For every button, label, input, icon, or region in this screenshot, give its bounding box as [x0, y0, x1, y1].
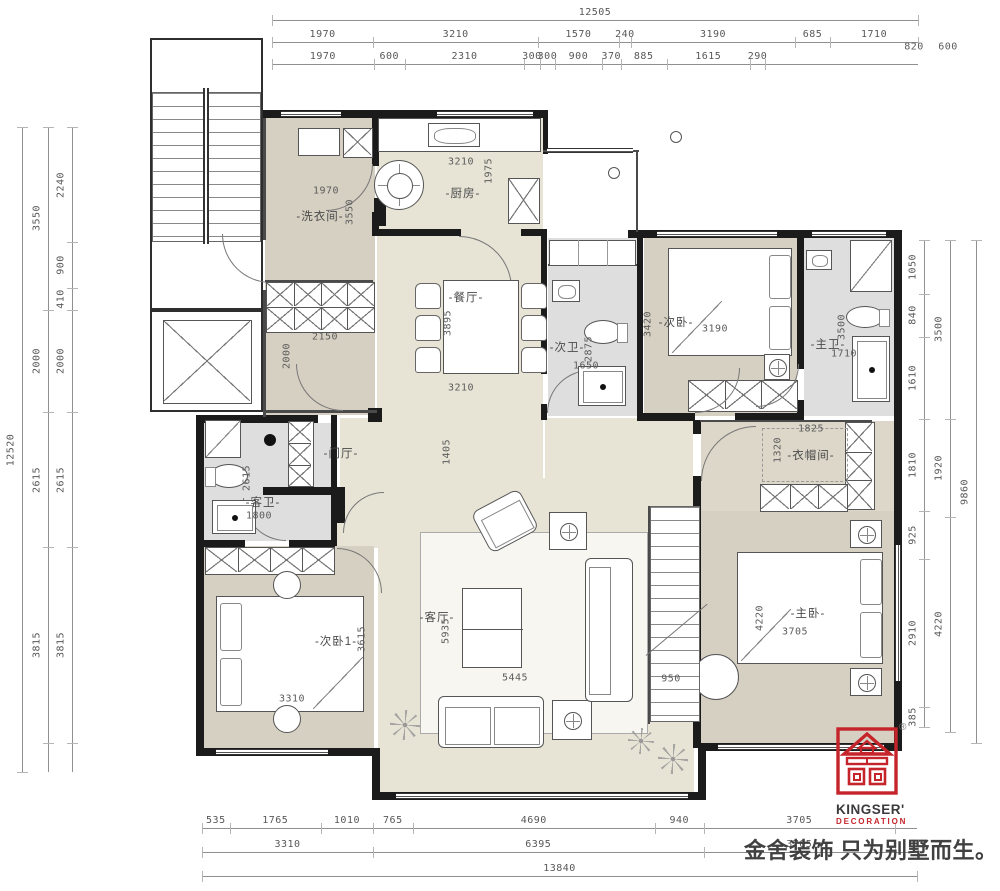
dining-chair	[415, 347, 441, 373]
side-table-lamp	[549, 512, 587, 550]
dimension-value: 4220	[755, 605, 766, 631]
dimension-value: 2615	[56, 467, 67, 493]
window	[437, 111, 533, 117]
dim-stub	[919, 240, 930, 241]
dim-stub	[704, 823, 705, 834]
faucet-dot	[600, 384, 606, 390]
stair-rail	[203, 88, 209, 244]
window	[547, 148, 633, 153]
dimension-value: 3550	[345, 199, 356, 225]
dimension-value: 1405	[442, 439, 453, 465]
dimension-value: 410	[56, 289, 67, 309]
dimension-value: 385	[908, 707, 919, 727]
dim-stub	[919, 419, 930, 420]
dim-stub	[704, 847, 705, 858]
wall	[331, 415, 337, 546]
round-fixture	[608, 167, 620, 179]
wall	[203, 540, 245, 547]
room-label: -次卫-	[550, 339, 585, 355]
dimension-value: 940	[669, 815, 689, 826]
window	[396, 793, 688, 799]
wall-thin	[636, 150, 638, 232]
dimension-value: 2150	[312, 332, 338, 343]
dim-stub	[919, 337, 930, 338]
wall	[797, 400, 804, 421]
counter	[298, 128, 340, 156]
wall	[693, 420, 701, 434]
dim-stub	[373, 823, 374, 834]
dimension-value: 12505	[579, 7, 612, 18]
plant	[658, 744, 688, 774]
brand-subtitle: DECORATION	[836, 817, 910, 826]
fan-inner	[387, 173, 413, 199]
dimension-value: 925	[908, 525, 919, 545]
dim-stub	[202, 871, 203, 882]
dimension-line	[22, 127, 23, 772]
dim-stub	[945, 240, 956, 241]
cabinet-hatch	[845, 422, 875, 510]
plant	[390, 710, 420, 740]
dim-stub	[655, 823, 656, 834]
shower-diagonal	[206, 421, 240, 457]
side-table-lamp	[850, 520, 882, 548]
dimension-line	[72, 127, 73, 772]
dimension-value: 1970	[310, 51, 336, 62]
dim-stub	[43, 127, 54, 128]
dim-stub	[272, 59, 273, 70]
blanket-fold	[313, 657, 363, 709]
dimension-value: 3310	[274, 839, 300, 850]
dimension-value: 2310	[451, 51, 477, 62]
dim-stub	[971, 743, 982, 744]
kingser-logo: KINGSER' DECORATION	[836, 727, 910, 826]
room-label: -客卫-	[246, 494, 281, 510]
dim-stub	[667, 59, 668, 70]
dining-chair	[521, 347, 547, 373]
room-label: -次卧1-	[315, 633, 357, 649]
sink	[806, 250, 832, 270]
dimension-value: 1825	[798, 424, 824, 435]
plant	[628, 728, 654, 754]
dim-stub	[43, 743, 54, 744]
dimension-value: 3210	[448, 383, 474, 394]
dim-stub	[17, 127, 28, 128]
loveseat	[438, 696, 544, 748]
brand-name: KINGSER'	[836, 802, 910, 817]
dimension-value: 6395	[525, 839, 551, 850]
dim-stub	[67, 242, 78, 243]
dimension-value: 4220	[934, 611, 945, 637]
room-label: -次卧-	[659, 314, 694, 330]
dimension-value: 1050	[908, 254, 919, 280]
dim-stub	[919, 559, 930, 560]
dimension-value: 3550	[32, 205, 43, 231]
dining-chair	[521, 315, 547, 341]
dim-stub	[919, 511, 930, 512]
sink	[428, 123, 480, 147]
round-fixture	[670, 131, 682, 143]
dining-chair	[415, 283, 441, 309]
dim-stub	[43, 310, 54, 311]
window	[812, 231, 886, 237]
coffee-table	[462, 588, 522, 668]
dimension-line	[976, 240, 977, 743]
dimension-value: 3210	[443, 29, 469, 40]
dimension-line	[272, 42, 918, 43]
bed	[668, 248, 792, 356]
toilet	[846, 306, 884, 328]
wall	[375, 229, 461, 236]
dim-stub	[945, 732, 956, 733]
wall	[337, 487, 345, 523]
dim-stub	[373, 847, 374, 858]
shower	[205, 420, 241, 458]
dimension-value: 240	[615, 29, 635, 40]
dimension-line	[272, 64, 918, 65]
dimension-value: 2910	[908, 620, 919, 646]
dimension-value: 1710	[831, 349, 857, 360]
toilet-tank	[617, 323, 628, 343]
dim-stub	[67, 310, 78, 311]
divider-line	[607, 240, 608, 266]
dimension-value: 1975	[484, 158, 495, 184]
cabinet-hatch	[288, 421, 314, 487]
shower-diagonal	[851, 241, 891, 291]
dim-stub	[374, 59, 375, 70]
window	[895, 545, 901, 681]
dimension-value: 3420	[643, 311, 654, 337]
dimension-value: 3500	[837, 314, 848, 340]
dimension-value: 370	[601, 51, 621, 62]
dimension-value: 1610	[908, 365, 919, 391]
fixture-dot	[264, 434, 276, 446]
divider-line	[578, 240, 579, 266]
dim-stub	[67, 288, 78, 289]
dimension-value: 1710	[861, 29, 887, 40]
dimension-value: 2615	[242, 465, 253, 491]
dim-stub	[945, 419, 956, 420]
dimension-value: 9860	[960, 478, 971, 504]
toilet-tank	[205, 467, 216, 487]
dimension-value: 5445	[502, 673, 528, 684]
cabinet-hatch	[266, 282, 375, 309]
cabinet-hatch	[163, 320, 252, 404]
dimension-value: 3190	[700, 29, 726, 40]
round-fixture	[273, 571, 301, 599]
faucet-dot	[869, 367, 875, 373]
dimension-value: 2000	[32, 348, 43, 374]
dim-stub	[67, 743, 78, 744]
wall	[797, 232, 804, 369]
dimension-value: 290	[748, 51, 768, 62]
dimension-value: 600	[380, 51, 400, 62]
dimension-value: 3500	[934, 316, 945, 342]
vanity	[852, 336, 890, 402]
dimension-value: 3705	[786, 815, 812, 826]
dimension-value: 600	[938, 42, 958, 53]
counter	[549, 240, 636, 266]
dimension-value: 5935	[441, 618, 452, 644]
dimension-value: 1320	[773, 437, 784, 463]
room-label: -衣帽间-	[787, 447, 834, 463]
dim-stub	[795, 37, 796, 48]
dim-stub	[918, 15, 919, 26]
dimension-value: 765	[383, 815, 403, 826]
dimension-value: 840	[908, 305, 919, 325]
cabinet-hatch	[205, 547, 335, 575]
dim-stub	[202, 823, 203, 834]
dim-stub	[971, 240, 982, 241]
dim-stub	[272, 37, 273, 48]
dim-stub	[67, 127, 78, 128]
dimension-value: 1010	[334, 815, 360, 826]
dimension-value: 3190	[702, 324, 728, 335]
room-label: -餐厅-	[449, 289, 484, 305]
dimension-value: 3815	[32, 632, 43, 658]
dimension-value: 4690	[521, 815, 547, 826]
dim-stub	[43, 412, 54, 413]
wall-thin	[265, 410, 377, 413]
cabinet-hatch	[508, 178, 540, 224]
dim-stub	[413, 823, 414, 834]
dimension-value: 900	[56, 256, 67, 276]
dim-stub	[538, 37, 539, 48]
side-table-lamp	[764, 354, 790, 380]
cooktop-fan	[374, 160, 424, 210]
dim-stub	[945, 517, 956, 518]
round-fixture	[273, 705, 301, 733]
dimension-value: 885	[634, 51, 654, 62]
window	[657, 231, 777, 237]
dimension-line	[202, 828, 917, 829]
dimension-line	[950, 240, 951, 732]
dimension-value: 1570	[565, 29, 591, 40]
wall-thin	[263, 118, 266, 240]
dim-stub	[405, 59, 406, 70]
wall	[196, 415, 204, 756]
shower	[850, 240, 892, 292]
dim-stub	[321, 823, 322, 834]
dimension-value: 1615	[695, 51, 721, 62]
dim-stub	[67, 547, 78, 548]
dining-chair	[521, 283, 547, 309]
kingser-logo-icon	[836, 727, 898, 795]
wall	[637, 413, 695, 421]
dimension-line	[202, 876, 917, 877]
dimension-value: 1810	[908, 452, 919, 478]
side-table-lamp	[552, 700, 592, 740]
vanity	[578, 366, 626, 406]
room-label: -主卧-	[791, 605, 826, 621]
dim-stub	[919, 294, 930, 295]
dimension-value: 2615	[32, 467, 43, 493]
door-arc	[337, 548, 382, 593]
dimension-value: 820	[904, 42, 924, 53]
dimension-value: 900	[569, 51, 589, 62]
dimension-value: 13840	[543, 863, 576, 874]
dimension-line	[48, 127, 49, 772]
dimension-value: 1650	[573, 361, 599, 372]
dimension-value: 1920	[934, 455, 945, 481]
cabinet-hatch	[343, 128, 373, 158]
wall	[372, 750, 380, 800]
dimension-value: 535	[206, 815, 226, 826]
dim-stub	[830, 37, 831, 48]
dimension-value: 1765	[262, 815, 288, 826]
dim-stub	[919, 727, 930, 728]
dimension-value: 3815	[56, 632, 67, 658]
dimension-value: 1800	[246, 511, 272, 522]
dim-stub	[202, 847, 203, 858]
dining-chair	[415, 315, 441, 341]
dimension-value: 3210	[448, 157, 474, 168]
side-table-lamp	[850, 668, 882, 696]
sink	[552, 280, 580, 302]
cabinet-hatch	[760, 484, 848, 512]
dim-stub	[917, 871, 918, 882]
dimension-value: 2240	[56, 172, 67, 198]
dimension-value: 3705	[782, 627, 808, 638]
dimension-line	[924, 240, 925, 727]
dimension-line	[272, 20, 918, 21]
dimension-value: 3310	[279, 694, 305, 705]
toilet-tank	[879, 309, 890, 327]
dimension-value: 1970	[313, 186, 339, 197]
dim-stub	[43, 547, 54, 548]
wall	[289, 540, 335, 547]
dimension-value: 2000	[282, 343, 293, 369]
cabinet-hatch	[266, 307, 375, 333]
dimension-value: 3615	[357, 626, 368, 652]
dimension-value: 685	[803, 29, 823, 40]
dim-stub	[67, 412, 78, 413]
dim-stub	[373, 37, 374, 48]
faucet-dot	[232, 515, 238, 521]
dimension-value: 12520	[6, 433, 17, 466]
room-label: -门厅-	[324, 445, 359, 461]
dimension-value: 3895	[443, 310, 454, 336]
floor-plan: ® KINGSER' DECORATION 金舍装饰 只为别墅而生。 12505…	[0, 0, 1000, 891]
dimension-value: 1970	[310, 29, 336, 40]
sofa	[585, 558, 633, 702]
dimension-value: 300	[538, 51, 558, 62]
dim-stub	[17, 772, 28, 773]
window	[216, 749, 328, 755]
window	[281, 111, 341, 117]
dimension-value: 950	[661, 674, 681, 685]
dim-stub	[272, 15, 273, 26]
dim-stub	[230, 823, 231, 834]
brand-slogan: 金舍装饰 只为别墅而生。	[744, 833, 998, 865]
dimension-value: 2000	[56, 348, 67, 374]
room-label: -洗衣间-	[296, 208, 343, 224]
dim-stub	[919, 707, 930, 708]
room-fill	[545, 418, 693, 478]
room-label: -厨房-	[446, 185, 481, 201]
dimension-value: 2875	[584, 336, 595, 362]
